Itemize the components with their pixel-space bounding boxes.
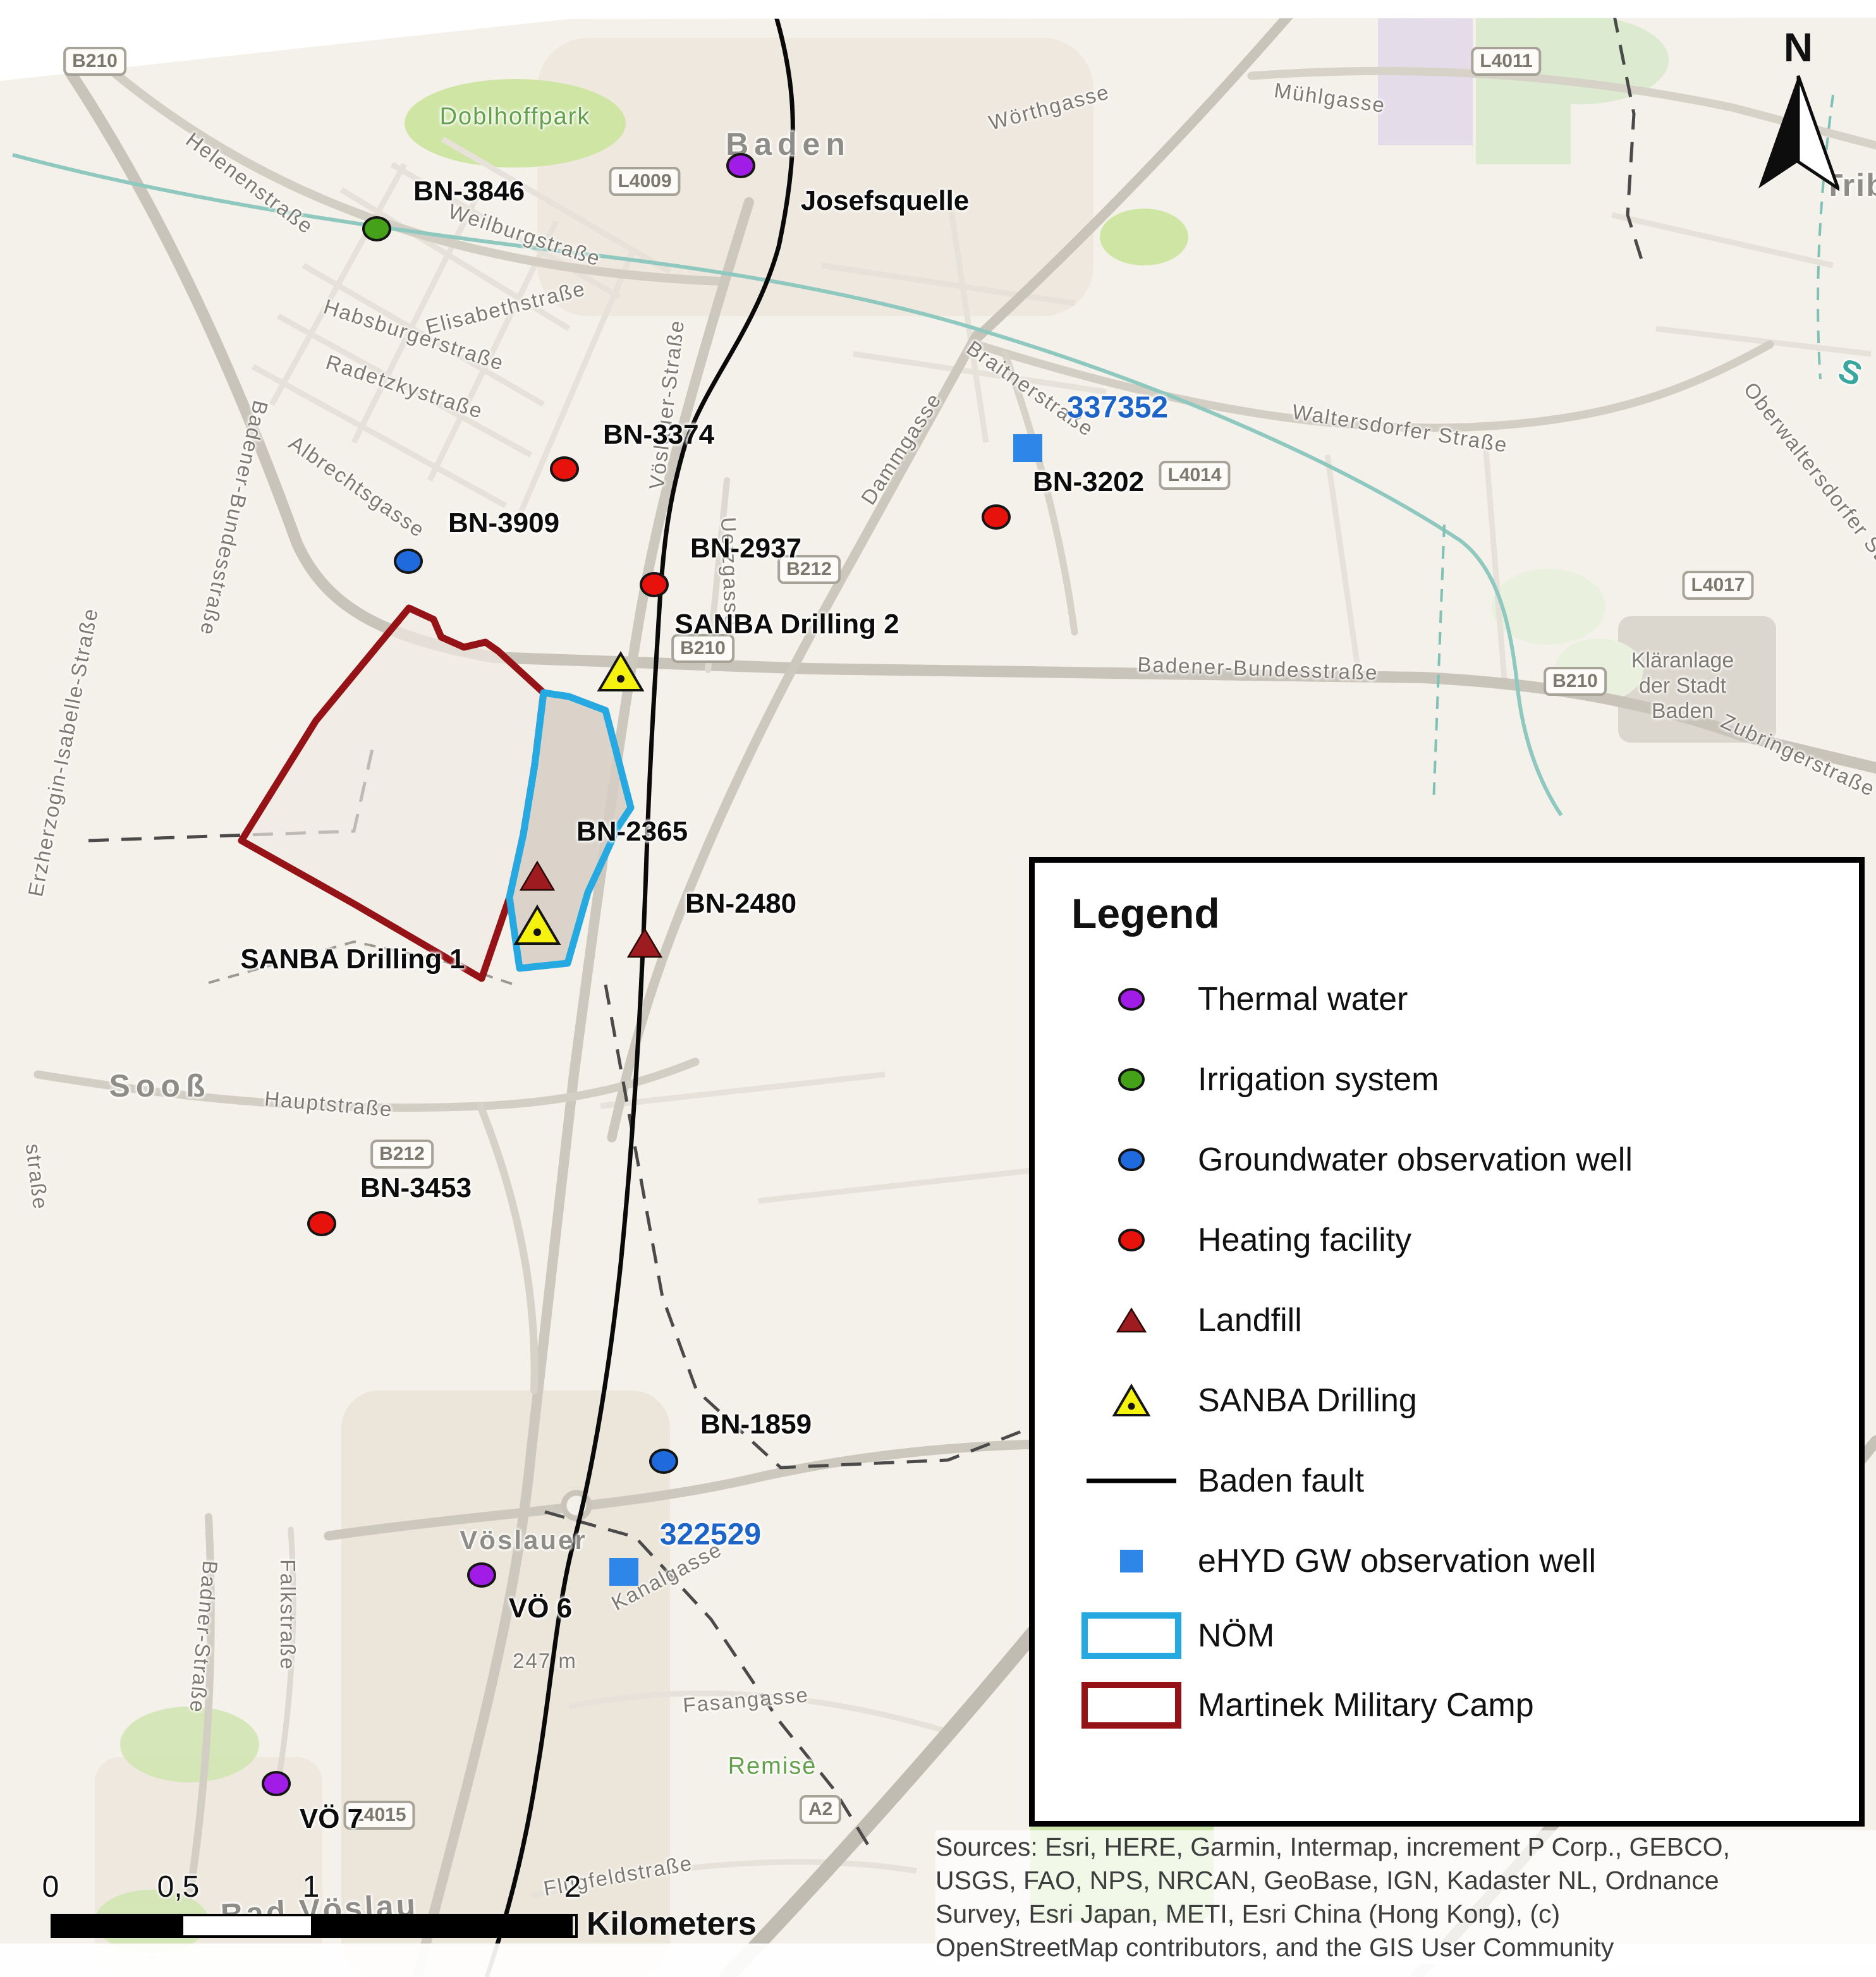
park-label: Doblhoffpark <box>440 104 591 131</box>
legend-item-label: NÖM <box>1198 1617 1274 1655</box>
area-cemetery <box>1378 16 1473 145</box>
scale-tick: 0,5 <box>157 1870 200 1904</box>
sources-line: OpenStreetMap contributors, and the GIS … <box>935 1931 1876 1964</box>
noem-outline-icon <box>1065 1612 1198 1660</box>
road-shield: B210 <box>1544 667 1607 696</box>
marker-sanba-drilling <box>597 651 645 693</box>
road-shield: L4014 <box>1159 461 1230 490</box>
site-label: BN-3846 <box>413 176 525 207</box>
site-label: BN-3202 <box>1033 466 1144 498</box>
site-label: BN-2937 <box>690 533 801 564</box>
park-label: Remise <box>728 1753 817 1780</box>
legend-item-martinek-camp: Martinek Military Camp <box>1065 1670 1859 1740</box>
road-shield: L4017 <box>1682 571 1753 600</box>
park-small <box>1100 209 1188 265</box>
marker-heating-facility <box>307 1211 336 1236</box>
place-label-voeslauer: Vöslauer <box>460 1525 587 1555</box>
legend-title: Legend <box>1071 889 1859 937</box>
legend-item-label: Heating facility <box>1198 1221 1411 1259</box>
road-shield: A2 <box>800 1795 841 1824</box>
map-canvas[interactable]: Helenenstraße Badener-Bundesstraße Erzhe… <box>0 0 1876 1977</box>
legend-item-thermal-water: Thermal water <box>1065 959 1859 1039</box>
scale-bar-segment <box>181 1916 314 1935</box>
road-shield: B210 <box>63 47 126 76</box>
north-arrow-icon <box>1757 71 1839 194</box>
site-label: SANBA Drilling 2 <box>674 609 899 640</box>
marker-heating-facility <box>640 572 669 597</box>
heating-facility-icon <box>1065 1227 1198 1253</box>
road-shield: L4009 <box>609 167 680 196</box>
legend-panel: Legend Thermal water Irrigation system G… <box>1029 857 1865 1827</box>
sources-attribution: Sources: Esri, HERE, Garmin, Intermap, i… <box>935 1830 1876 1964</box>
marker-thermal-water <box>726 153 755 178</box>
marker-thermal-water <box>262 1771 291 1796</box>
legend-item-label: Thermal water <box>1198 980 1408 1018</box>
legend-item-noem: NÖM <box>1065 1601 1859 1670</box>
north-arrow: N <box>1757 24 1839 197</box>
legend-item-baden-fault: Baden fault <box>1065 1440 1859 1521</box>
legend-item-heating-facility: Heating facility <box>1065 1200 1859 1280</box>
city-label-soos: Sooß <box>109 1068 211 1104</box>
site-label: BN-3453 <box>360 1172 472 1204</box>
legend-item-label: eHYD GW observation well <box>1198 1542 1596 1580</box>
irrigation-system-icon <box>1065 1067 1198 1092</box>
scale-bar <box>51 1914 578 1938</box>
elevation-label: 247 m <box>513 1649 577 1673</box>
legend-item-irrigation-system: Irrigation system <box>1065 1039 1859 1119</box>
legend-item-label: Groundwater observation well <box>1198 1141 1633 1179</box>
sources-line: USGS, FAO, NPS, NRCAN, GeoBase, IGN, Kad… <box>935 1864 1876 1897</box>
marker-ehyd-well <box>1013 434 1042 462</box>
sanba-drilling-icon <box>1065 1384 1198 1418</box>
legend-item-groundwater-well: Groundwater observation well <box>1065 1119 1859 1200</box>
marker-heating-facility <box>982 504 1011 530</box>
site-label: BN-1859 <box>700 1409 812 1440</box>
site-label: BN-2480 <box>685 888 796 920</box>
marker-landfill <box>519 860 556 892</box>
scale-bar-unit: Kilometers <box>587 1905 757 1943</box>
road-shield: L4011 <box>1471 47 1541 76</box>
marker-groundwater-well <box>394 549 423 574</box>
marker-heating-facility <box>550 456 579 482</box>
scale-bar-segment <box>314 1916 573 1935</box>
site-label: VÖ 6 <box>509 1593 572 1624</box>
site-label: VÖ 7 <box>300 1803 363 1835</box>
site-label: BN-2365 <box>576 816 688 848</box>
site-label: BN-3909 <box>448 508 559 539</box>
martinek-military-camp-outline <box>241 608 544 978</box>
site-label: SANBA Drilling 1 <box>240 944 465 975</box>
site-label-ehyd: 337352 <box>1067 391 1168 425</box>
marker-groundwater-well <box>649 1449 678 1474</box>
scale-tick: 1 <box>303 1870 320 1904</box>
ehyd-well-icon <box>1065 1548 1198 1574</box>
scale-tick: 0 <box>42 1870 59 1904</box>
landfill-icon <box>1065 1306 1198 1334</box>
martinek-camp-outline-icon <box>1065 1681 1198 1729</box>
site-label-ehyd: 322529 <box>660 1518 761 1552</box>
scale-bar-segment <box>53 1916 181 1935</box>
marker-ehyd-well <box>609 1558 638 1586</box>
thermal-water-icon <box>1065 987 1198 1012</box>
scale-tick: 2 <box>564 1870 582 1904</box>
sources-line: Sources: Esri, HERE, Garmin, Intermap, i… <box>935 1830 1876 1864</box>
marker-landfill <box>626 927 663 959</box>
legend-item-label: Baden fault <box>1198 1462 1364 1500</box>
legend-item-sanba-drilling: SANBA Drilling <box>1065 1360 1859 1440</box>
area-label-klaeranlage: Kläranlage der Stadt Baden <box>1631 648 1734 724</box>
site-label: Josefsquelle <box>801 185 970 217</box>
street-label: Falkstraße <box>276 1559 300 1670</box>
legend-item-label: SANBA Drilling <box>1198 1382 1417 1420</box>
sources-line: Survey, Esri Japan, METI, Esri China (Ho… <box>935 1897 1876 1931</box>
legend-item-landfill: Landfill <box>1065 1280 1859 1360</box>
groundwater-well-icon <box>1065 1147 1198 1172</box>
legend-item-label: Irrigation system <box>1198 1061 1439 1098</box>
site-label: BN-3374 <box>603 419 714 451</box>
baden-fault-icon <box>1065 1477 1198 1485</box>
north-arrow-label: N <box>1757 24 1839 71</box>
green-southwest-a <box>120 1706 259 1782</box>
legend-item-label: Martinek Military Camp <box>1198 1686 1534 1724</box>
marker-irrigation-system <box>362 216 391 241</box>
road-shield: B212 <box>370 1140 434 1169</box>
legend-item-label: Landfill <box>1198 1301 1302 1339</box>
marker-thermal-water <box>467 1562 496 1588</box>
legend-item-ehyd-well: eHYD GW observation well <box>1065 1521 1859 1601</box>
marker-sanba-drilling <box>513 904 561 946</box>
